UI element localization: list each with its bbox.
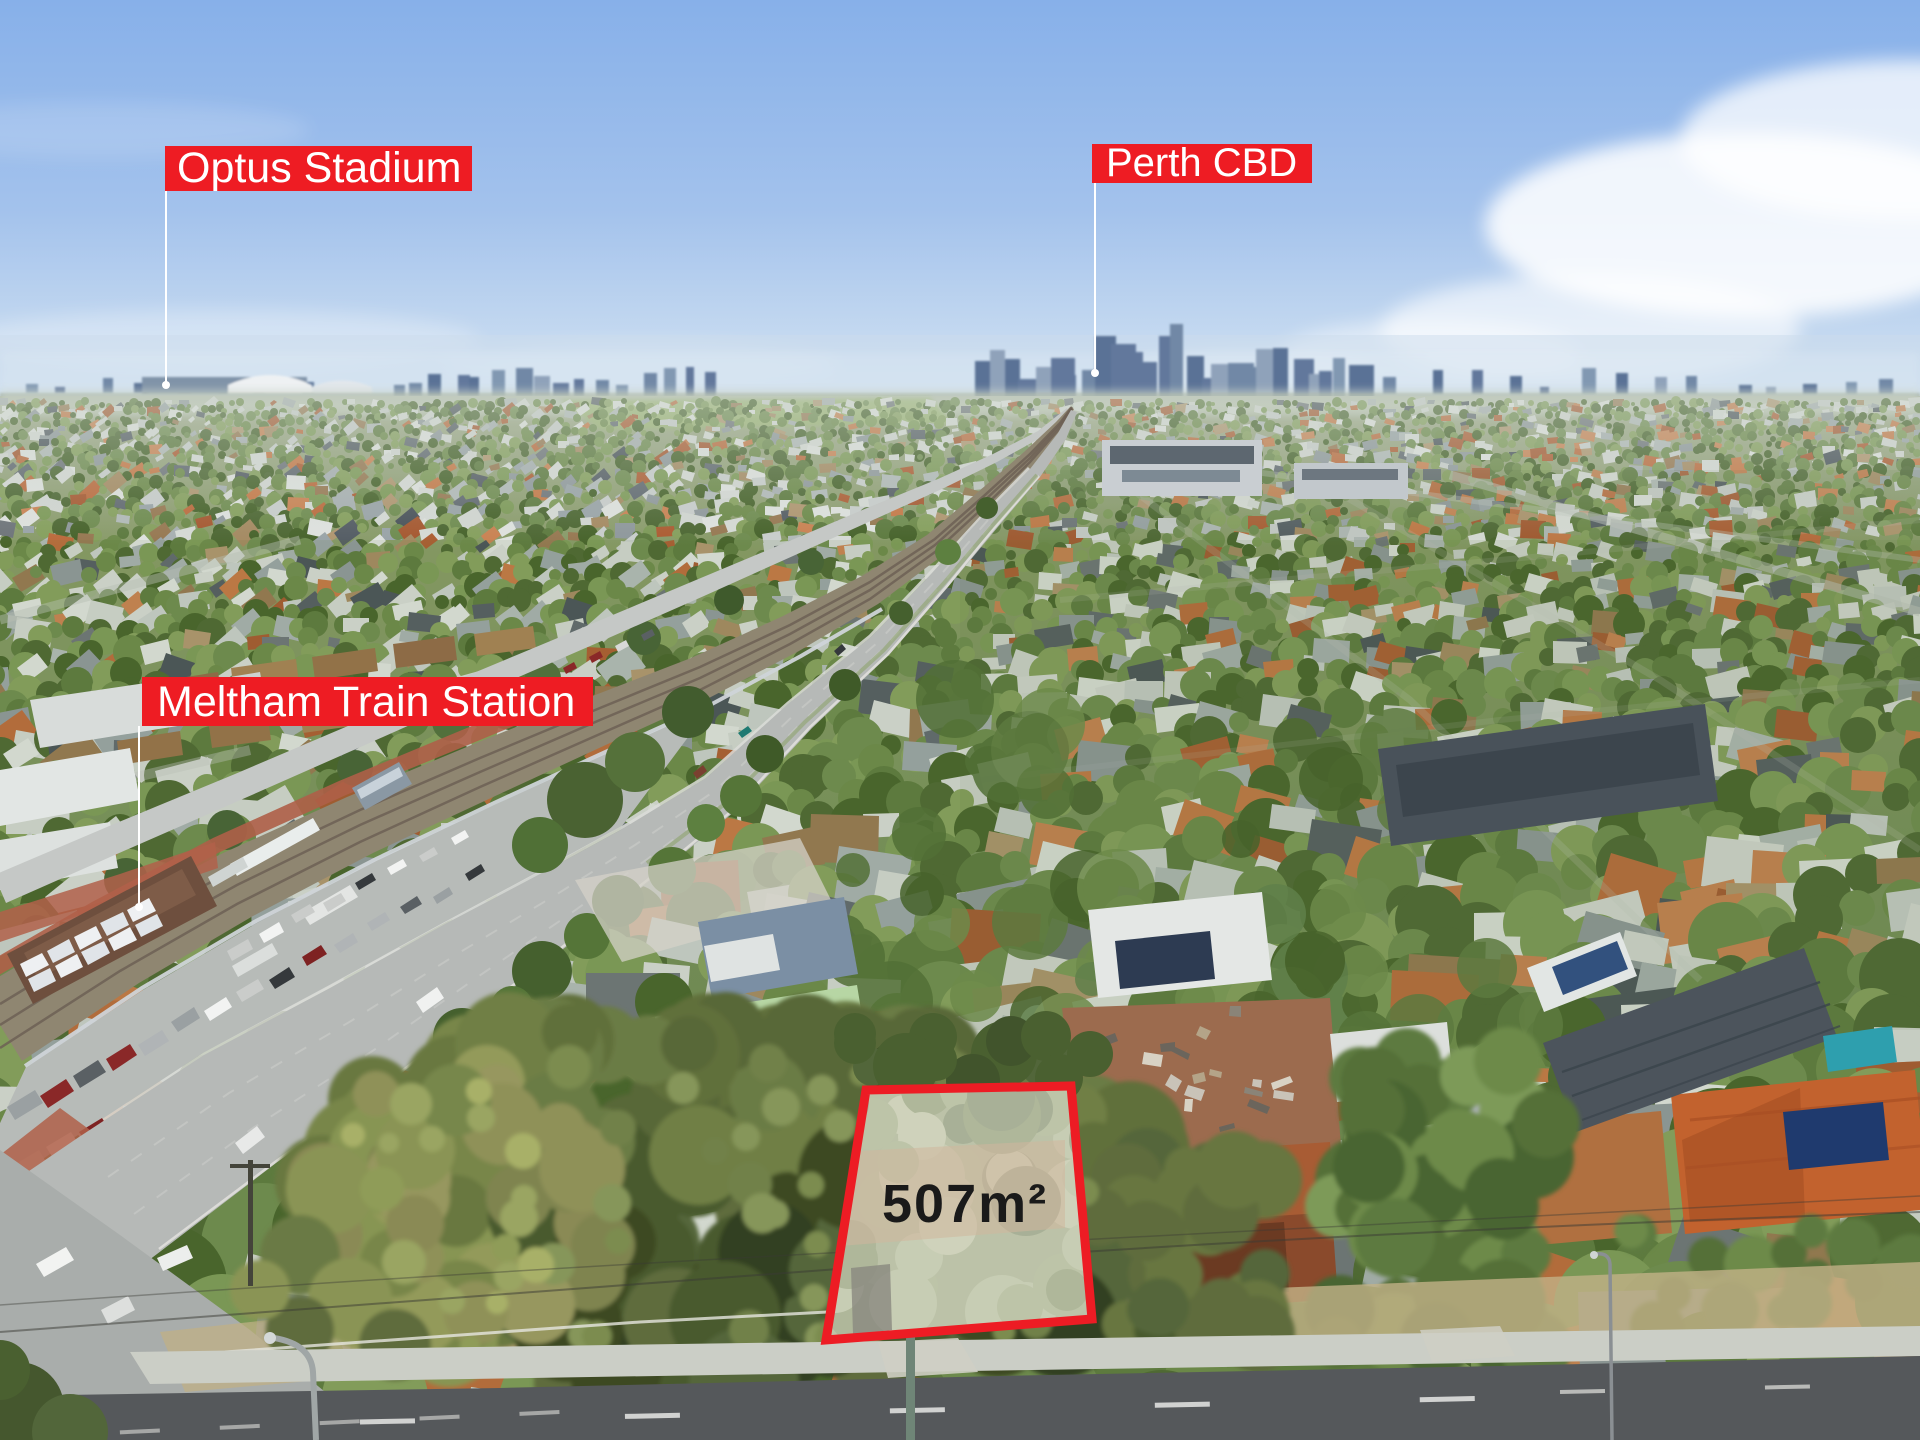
svg-text:Perth CBD: Perth CBD — [1106, 141, 1297, 185]
svg-text:507m²: 507m² — [882, 1174, 1048, 1234]
svg-text:Meltham Train Station: Meltham Train Station — [157, 678, 575, 726]
svg-text:Optus Stadium: Optus Stadium — [177, 144, 461, 192]
